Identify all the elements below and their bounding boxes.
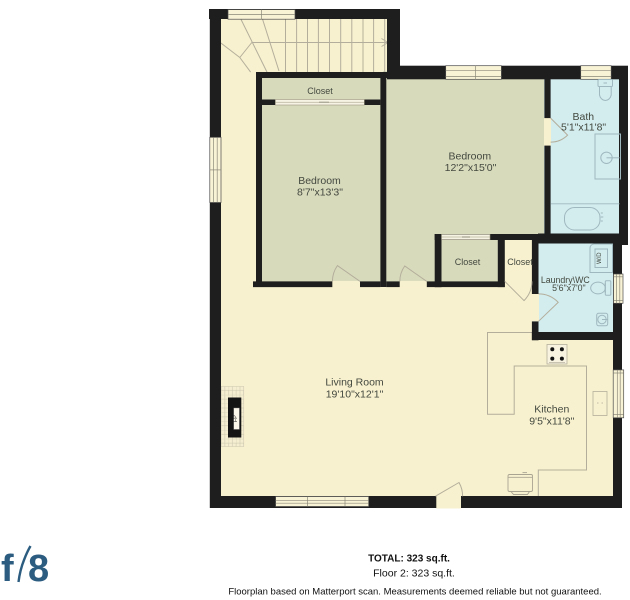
svg-text:9'5"x11'8": 9'5"x11'8" <box>529 415 574 427</box>
svg-text:Living Room: Living Room <box>325 377 384 389</box>
svg-text:FP: FP <box>233 415 239 422</box>
svg-text:12'2"x15'0": 12'2"x15'0" <box>445 162 497 174</box>
svg-text:19'10"x12'1": 19'10"x12'1" <box>326 388 384 400</box>
svg-text:Closet: Closet <box>455 257 481 267</box>
svg-text:Floor 2: 323 sq.ft.: Floor 2: 323 sq.ft. <box>373 568 455 580</box>
svg-text:f: f <box>1 548 14 590</box>
svg-text:TOTAL: 323 sq.ft.: TOTAL: 323 sq.ft. <box>368 554 450 565</box>
svg-text:Bedroom: Bedroom <box>298 175 341 187</box>
svg-text:8: 8 <box>28 548 49 590</box>
svg-text:Bedroom: Bedroom <box>448 151 491 163</box>
svg-text:W/D: W/D <box>597 252 603 264</box>
svg-text:Closet: Closet <box>307 86 333 96</box>
svg-text:Closet: Closet <box>507 257 533 267</box>
svg-text:Kitchen: Kitchen <box>534 403 569 415</box>
svg-text:5'6"x7'0": 5'6"x7'0" <box>552 283 586 293</box>
svg-text:Floorplan based on Matterport: Floorplan based on Matterport scan. Meas… <box>228 587 601 598</box>
svg-text:5'1"x11'8": 5'1"x11'8" <box>561 121 606 133</box>
svg-text:8'7"x13'3": 8'7"x13'3" <box>297 187 343 199</box>
